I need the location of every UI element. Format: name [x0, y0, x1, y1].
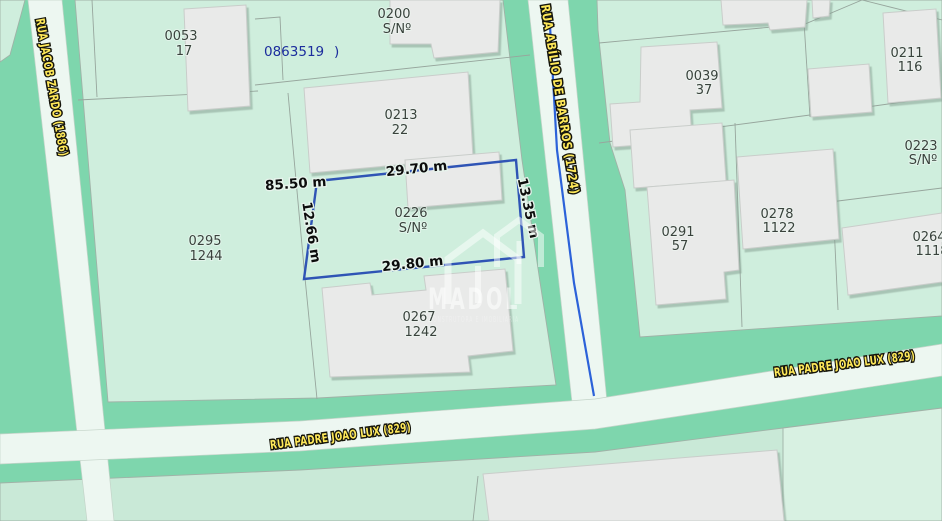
lot-block-bottom-right[interactable] — [783, 408, 942, 521]
parcel-label-0039-number[interactable]: 37 — [696, 83, 713, 98]
parcel-label-0264-code[interactable]: 0264 — [912, 230, 942, 245]
parcel-label-0291-number[interactable]: 57 — [672, 239, 689, 254]
parcel-label-0223-code[interactable]: 0223 — [904, 139, 937, 154]
parcel-label-0211-code[interactable]: 0211 — [890, 46, 923, 61]
parcel-label-0226-number[interactable]: S/Nº — [399, 221, 427, 236]
sector-code-label: 0863519 — [264, 44, 324, 60]
parcel-label-0267-number[interactable]: 1242 — [404, 325, 437, 340]
parcel-label-0053-code[interactable]: 0053 — [164, 29, 197, 44]
parcel-label-0291-code[interactable]: 0291 — [661, 225, 694, 240]
building — [184, 5, 250, 111]
sector-code-suffix: ) — [334, 44, 339, 60]
watermark-subtitle: CONSTRUTORA E IMOBILIARIA — [429, 315, 519, 324]
cadastral-map[interactable]: 0053 17 0863519 ) 0200 S/Nº 0213 22 0226… — [0, 0, 942, 521]
building — [812, 0, 830, 18]
parcel-label-0213-code[interactable]: 0213 — [384, 108, 417, 123]
parcel-label-0278-number[interactable]: 1122 — [762, 221, 795, 236]
parcel-label-0213-number[interactable]: 22 — [392, 123, 409, 138]
parcel-label-0264-number[interactable]: 1118 — [915, 244, 942, 259]
parcel-label-0295-number[interactable]: 1244 — [189, 249, 222, 264]
parcel-label-0295-code[interactable]: 0295 — [188, 234, 221, 249]
parcel-label-0200-code[interactable]: 0200 — [377, 7, 410, 22]
parcel-label-0211-number[interactable]: 116 — [898, 60, 923, 75]
parcel-label-0278-code[interactable]: 0278 — [760, 207, 793, 222]
parcel-label-0223-number[interactable]: S/Nº — [909, 153, 937, 168]
map-viewport[interactable]: 0053 17 0863519 ) 0200 S/Nº 0213 22 0226… — [0, 0, 942, 521]
parcel-label-0039-code[interactable]: 0039 — [685, 69, 718, 84]
parcel-label-0200-number[interactable]: S/Nº — [383, 22, 411, 37]
building — [647, 180, 739, 305]
parcel-label-0053-number[interactable]: 17 — [176, 44, 193, 59]
watermark-brand: MADOL — [428, 282, 520, 316]
building — [630, 123, 726, 188]
parcel-label-0226-code[interactable]: 0226 — [394, 206, 427, 221]
building — [808, 64, 872, 117]
